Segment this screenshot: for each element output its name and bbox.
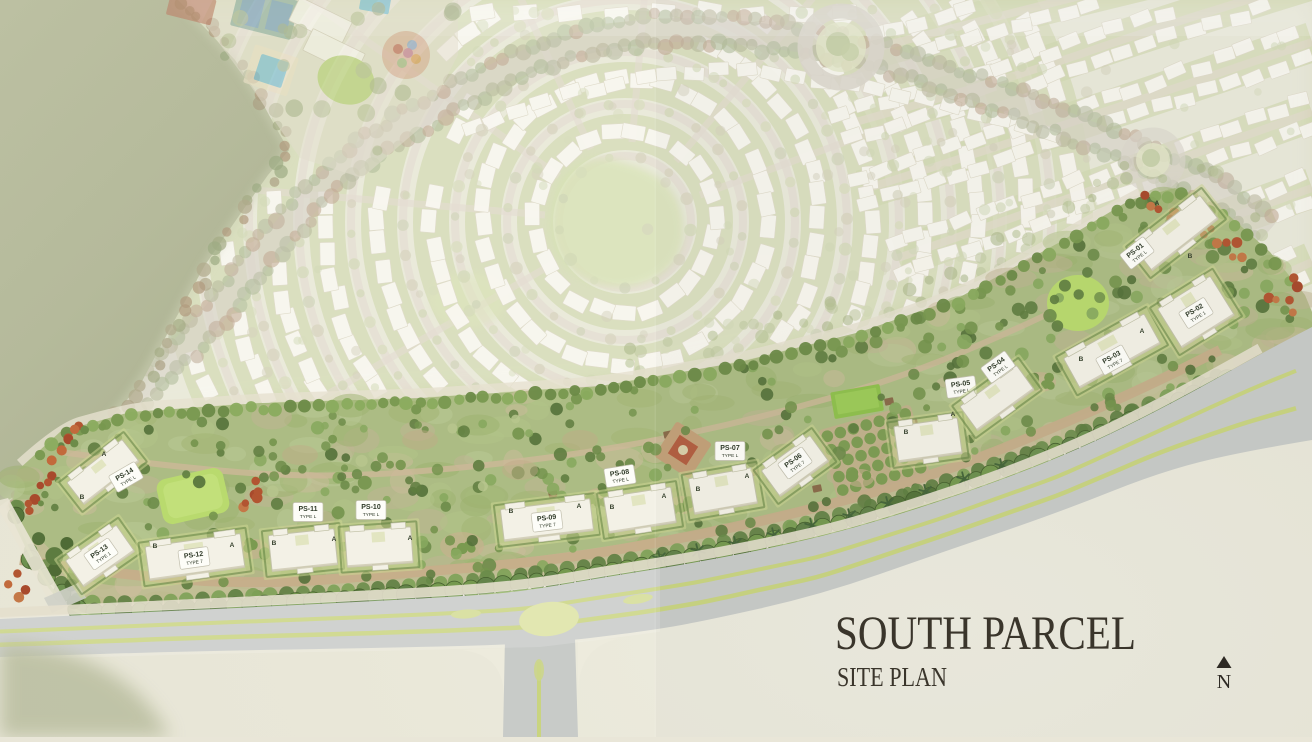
svg-text:N: N [1217,671,1231,693]
svg-text:A: A [577,503,582,510]
svg-text:B: B [610,504,615,511]
svg-text:B: B [509,508,514,515]
svg-text:PS-11: PS-11 [298,506,317,513]
svg-text:TYPE L: TYPE L [300,514,317,520]
svg-text:TYPE L: TYPE L [363,512,380,518]
svg-text:SITE PLAN: SITE PLAN [837,662,947,692]
svg-text:B: B [272,540,277,547]
svg-text:A: A [102,451,107,458]
svg-text:SOUTH PARCEL: SOUTH PARCEL [835,607,1136,660]
svg-text:A: A [332,536,337,543]
svg-text:PS-10: PS-10 [361,504,381,511]
svg-text:A: A [230,542,235,549]
svg-text:A: A [408,535,413,542]
svg-text:B: B [80,494,85,501]
svg-text:B: B [153,543,158,550]
